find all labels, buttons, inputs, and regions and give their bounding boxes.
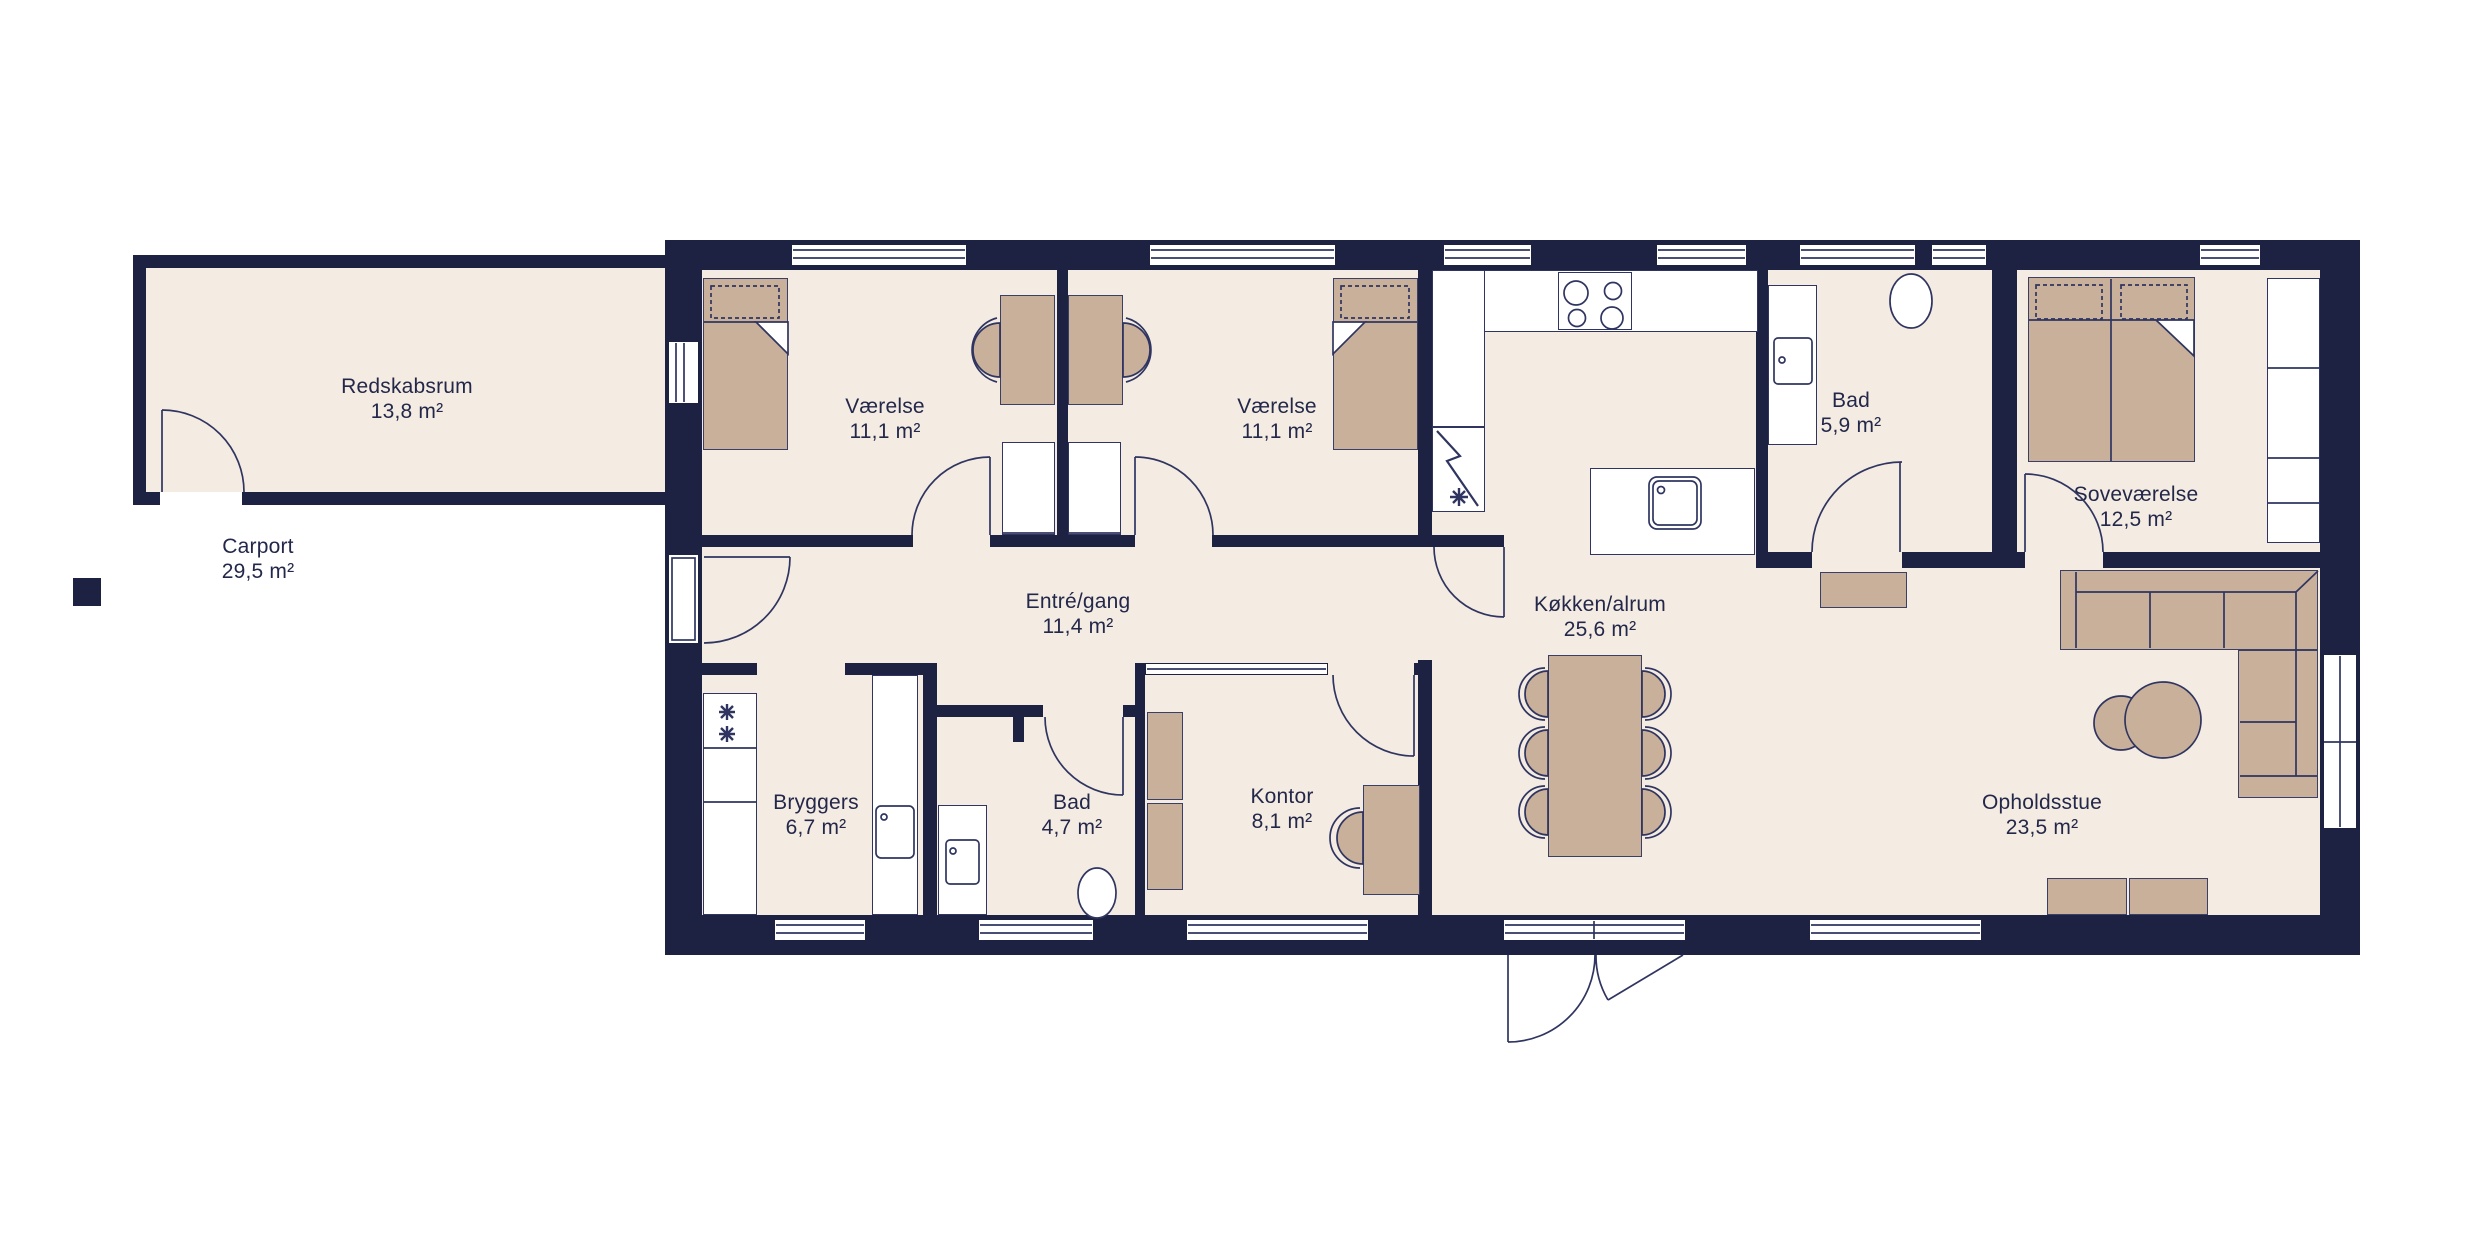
room-label-vaerelse-2: Værelse 11,1 m² bbox=[1237, 394, 1317, 444]
room-name: Bad bbox=[1821, 388, 1882, 413]
bookcase bbox=[1147, 803, 1183, 890]
room-name: Bad bbox=[1042, 790, 1103, 815]
bad47-vanity bbox=[938, 805, 987, 915]
room-label-koekken: Køkken/alrum 25,6 m² bbox=[1534, 592, 1666, 642]
desk bbox=[1068, 295, 1123, 405]
wall-shed-left bbox=[133, 255, 146, 505]
wall-bedroom2-south-a bbox=[1068, 535, 1135, 547]
wall-bedroom-divider bbox=[1057, 270, 1068, 547]
office-desk bbox=[1363, 785, 1420, 895]
wardrobe bbox=[1002, 442, 1055, 535]
room-label-vaerelse-1: Værelse 11,1 m² bbox=[845, 394, 925, 444]
room-area: 11,1 m² bbox=[845, 419, 925, 444]
room-name: Opholdsstue bbox=[1982, 790, 2102, 815]
room-area: 25,6 m² bbox=[1534, 617, 1666, 642]
bed bbox=[703, 278, 788, 450]
room-name: Køkken/alrum bbox=[1534, 592, 1666, 617]
tv-bench bbox=[2047, 878, 2127, 915]
dining-table bbox=[1548, 655, 1642, 857]
wall-bad59-east bbox=[1992, 270, 2017, 568]
door-swing-french-left bbox=[1508, 955, 1595, 1042]
room-label-entre: Entré/gang 11,4 m² bbox=[1026, 589, 1131, 639]
window bbox=[1808, 918, 1983, 942]
wall-kontor-west bbox=[1135, 663, 1145, 915]
room-label-bad-stor: Bad 5,9 m² bbox=[1821, 388, 1882, 438]
room-area: 11,1 m² bbox=[1237, 419, 1317, 444]
wall-shed-top bbox=[133, 255, 665, 268]
room-label-opholdsstue: Opholdsstue 23,5 m² bbox=[1982, 790, 2102, 840]
double-bed bbox=[2028, 277, 2195, 462]
bryggers-counter bbox=[872, 675, 918, 915]
room-area: 8,1 m² bbox=[1250, 809, 1313, 834]
room-area: 12,5 m² bbox=[2074, 507, 2199, 532]
wall-entre-bryggers-a bbox=[702, 663, 757, 675]
wall-kitchen-sw-stub bbox=[1432, 535, 1504, 547]
room-area: 5,9 m² bbox=[1821, 413, 1882, 438]
window bbox=[1185, 918, 1370, 942]
desk bbox=[1000, 295, 1055, 405]
window bbox=[1930, 243, 1988, 267]
front-door bbox=[667, 553, 700, 645]
window bbox=[667, 340, 700, 405]
window bbox=[2198, 243, 2262, 267]
wall-bedroom1-south-a bbox=[702, 535, 913, 547]
wall-bedroom2-south-b bbox=[1212, 535, 1432, 547]
bed bbox=[1333, 278, 1418, 450]
room-label-redskabsrum: Redskabsrum 13,8 m² bbox=[341, 374, 473, 424]
window bbox=[1442, 243, 1533, 267]
wall-bryggers-east bbox=[923, 663, 937, 915]
glazed-partition-kontor bbox=[1145, 663, 1328, 675]
room-name: Entré/gang bbox=[1026, 589, 1131, 614]
carport-post bbox=[73, 578, 101, 606]
wardrobe bbox=[1068, 442, 1121, 535]
window bbox=[977, 918, 1095, 942]
room-name: Bryggers bbox=[773, 790, 859, 815]
window bbox=[1148, 243, 1337, 267]
window bbox=[1798, 243, 1917, 267]
room-name: Værelse bbox=[845, 394, 925, 419]
window bbox=[1655, 243, 1748, 267]
window bbox=[773, 918, 867, 942]
room-name: Kontor bbox=[1250, 784, 1313, 809]
room-area: 11,4 m² bbox=[1026, 614, 1131, 639]
room-area: 29,5 m² bbox=[222, 559, 295, 584]
room-name: Redskabsrum bbox=[341, 374, 473, 399]
fridge-freezer bbox=[1432, 427, 1485, 512]
wall-shed-bottom-b bbox=[242, 492, 665, 505]
wardrobe bbox=[2267, 278, 2320, 543]
room-label-bryggers: Bryggers 6,7 m² bbox=[773, 790, 859, 840]
wall-bad47-north-a bbox=[937, 705, 1043, 717]
wall-bad47-stub bbox=[1013, 717, 1024, 742]
room-label-sovevaerelse: Soveværelse 12,5 m² bbox=[2074, 482, 2199, 532]
window bbox=[790, 243, 968, 267]
room-area: 6,7 m² bbox=[773, 815, 859, 840]
room-name: Soveværelse bbox=[2074, 482, 2199, 507]
floor-plan: Redskabsrum 13,8 m² Carport 29,5 m² Være… bbox=[0, 0, 2481, 1237]
wall-kontor-east bbox=[1418, 660, 1432, 915]
room-area: 23,5 m² bbox=[1982, 815, 2102, 840]
wall-exterior-right bbox=[2320, 240, 2360, 955]
wall-kontor-door-stub bbox=[1414, 663, 1418, 675]
room-label-bad-lille: Bad 4,7 m² bbox=[1042, 790, 1103, 840]
sofa-horizontal bbox=[2060, 570, 2318, 650]
wall-shed-bottom-a bbox=[133, 492, 160, 505]
wall-bad47-north-b bbox=[1123, 705, 1135, 717]
french-door bbox=[1502, 918, 1687, 942]
room-area: 13,8 m² bbox=[341, 399, 473, 424]
kitchen-island bbox=[1590, 468, 1755, 555]
terrace-door bbox=[2322, 653, 2358, 830]
tv-bench bbox=[2129, 878, 2208, 915]
bad59-vanity bbox=[1768, 285, 1817, 445]
wall-sove-south-a bbox=[2017, 552, 2025, 568]
sideboard bbox=[1820, 572, 1907, 608]
stove bbox=[1558, 272, 1632, 330]
kitchen-counter-side bbox=[1432, 270, 1485, 427]
sofa-vertical bbox=[2238, 650, 2318, 798]
wall-bad59-south-a bbox=[1756, 552, 1812, 568]
wall-bedroom2-east bbox=[1418, 270, 1432, 547]
room-name: Værelse bbox=[1237, 394, 1317, 419]
washer-dryer-column bbox=[703, 693, 757, 915]
room-name: Carport bbox=[222, 534, 295, 559]
room-area: 4,7 m² bbox=[1042, 815, 1103, 840]
room-label-kontor: Kontor 8,1 m² bbox=[1250, 784, 1313, 834]
bookcase bbox=[1147, 712, 1183, 800]
door-swing-french-right bbox=[1596, 955, 1683, 1000]
room-label-carport: Carport 29,5 m² bbox=[222, 534, 295, 584]
wall-sove-south-b bbox=[2103, 552, 2320, 568]
